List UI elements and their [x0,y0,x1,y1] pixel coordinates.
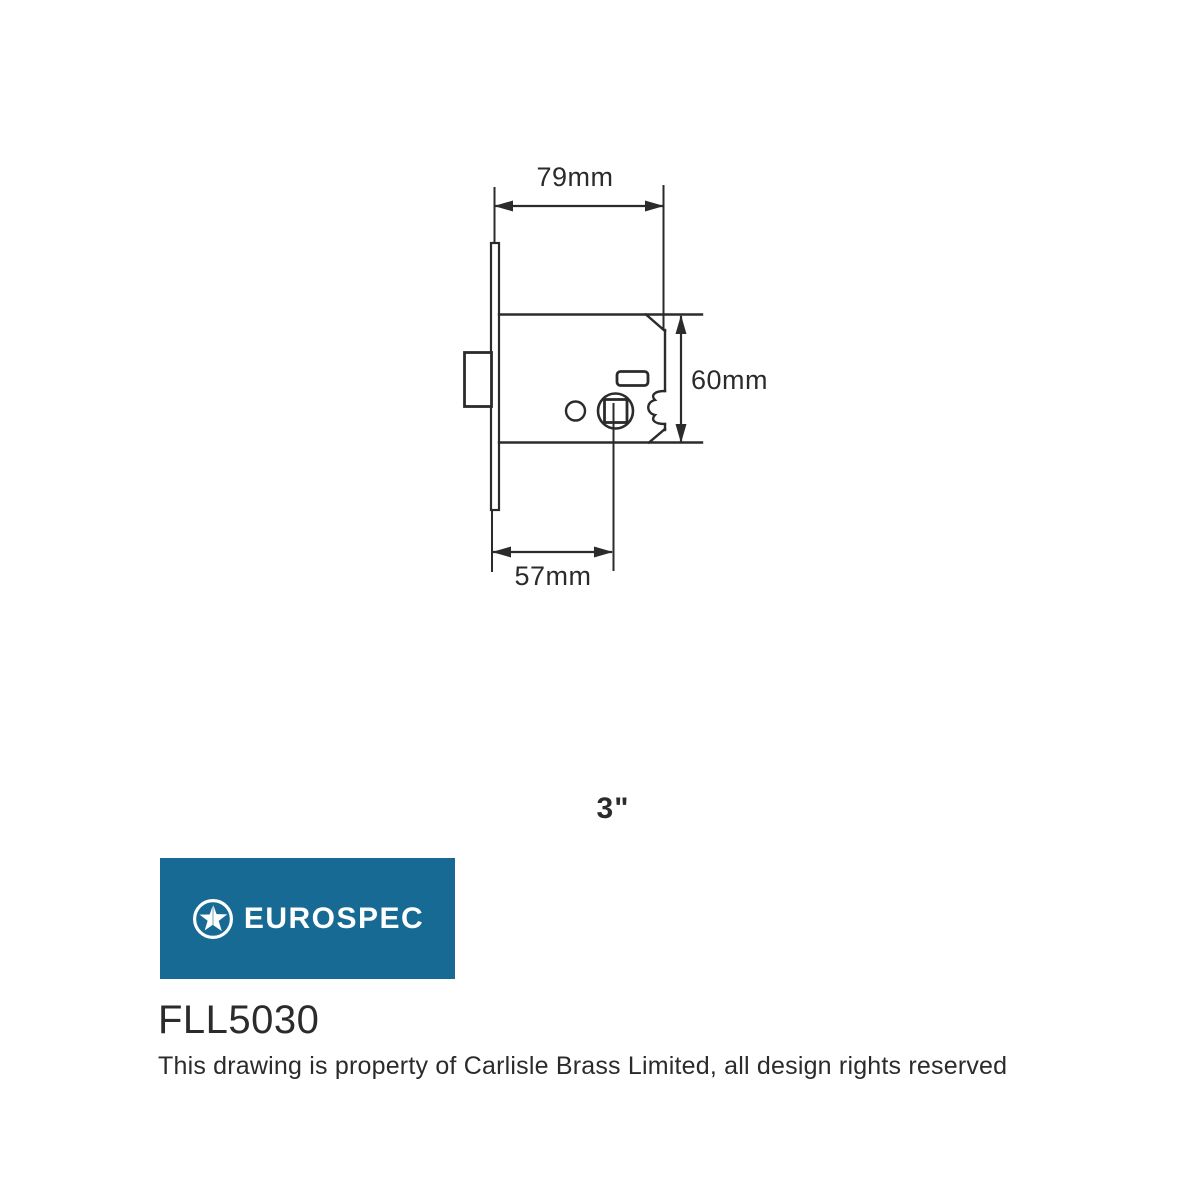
product-code: FLL5030 [158,998,319,1043]
drawing-sheet: 79mm 60mm 57mm 3" EUROSPEC FLL5030 This … [0,0,1200,1200]
lock-case-outline [499,315,702,443]
latch-notch [648,391,665,424]
size-label-inches: 3" [538,792,688,826]
dimension-57mm [492,547,613,558]
fixing-hole [566,402,585,421]
rights-notice: This drawing is property of Carlisle Bra… [158,1052,1158,1081]
dimension-label-height: 60mm [691,365,768,396]
arrowhead-down-icon [676,424,687,443]
top-chamfer [646,315,665,332]
latch-bolt [465,353,492,407]
dimension-label-backset: 57mm [463,561,643,592]
arrowhead-left-icon [494,201,513,212]
dimension-79mm [494,186,664,328]
brand-name: EUROSPEC [244,902,424,936]
dimension-label-width: 79mm [475,162,675,193]
arrowhead-up-icon [676,315,687,334]
star-in-circle-icon [191,897,235,941]
eurospec-logo: EUROSPEC [160,858,455,979]
arrowhead-right-icon [645,201,664,212]
arrowhead-left-icon [492,547,511,558]
spindle-follower-square [605,400,628,423]
arrowhead-right-icon [594,547,613,558]
bottom-chamfer [649,429,665,443]
dimension-60mm [676,315,687,443]
slot-cutout [617,372,648,386]
